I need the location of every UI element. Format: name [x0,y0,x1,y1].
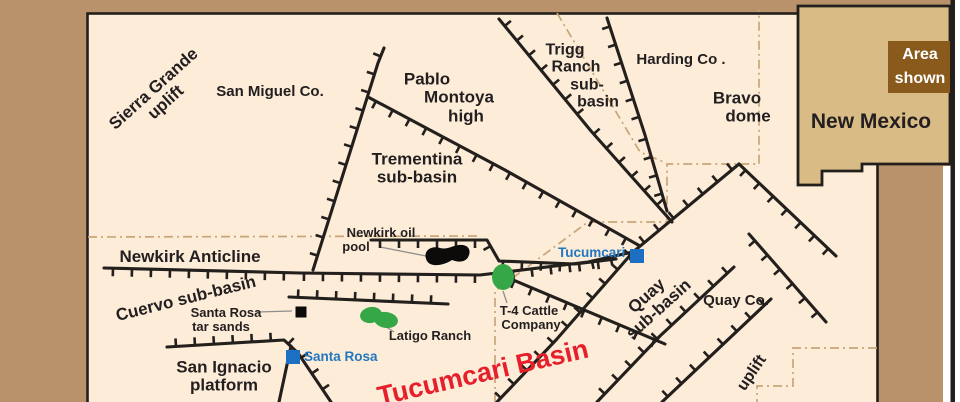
geologic-map-figure: Tucumcari Basin New Mexico Area shown Si… [0,0,960,402]
newkirk-anticline-fault-tick [532,269,533,277]
figure-border-line [951,0,956,402]
city-square-santa-rosa [286,350,300,364]
newkirk-north-fault-tick [579,264,580,272]
figure-margin-gap [943,166,951,402]
newkirk-anticline-fault-tick [550,267,551,275]
t4-cattle-area [492,264,514,290]
figure-margin-right [955,0,960,402]
map-canvas [0,0,960,402]
city-square-tucumcari [630,249,644,263]
newkirk-north-fault-tick [598,261,599,269]
area-shown-box [888,41,950,93]
new-mexico-outline [798,6,950,185]
santa-rosa-tar-sands-marker [296,307,307,318]
newkirk-anticline-fault-tick [569,264,570,272]
